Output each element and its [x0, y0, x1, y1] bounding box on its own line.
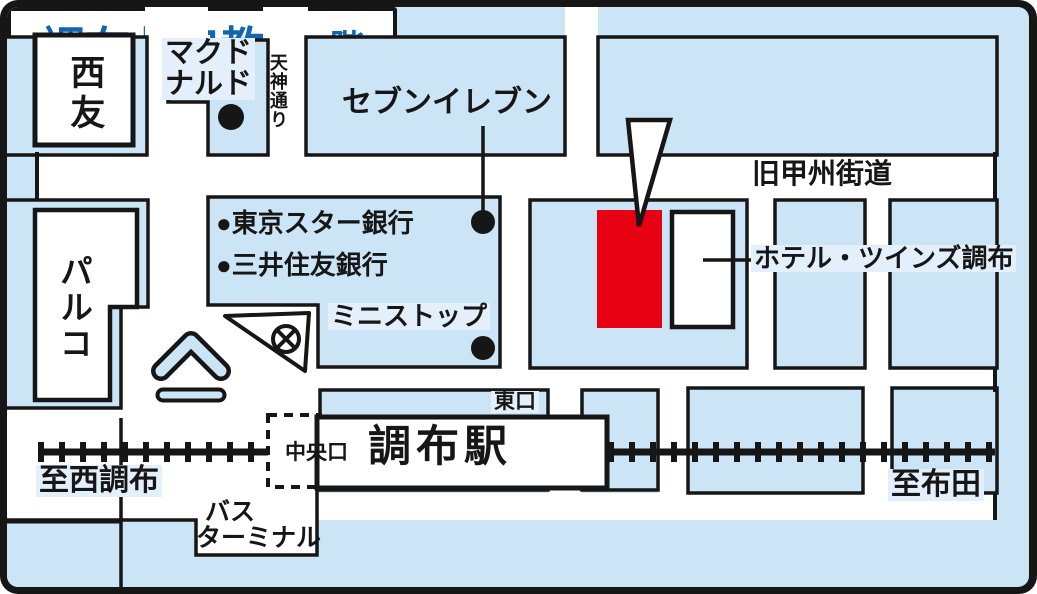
block-f: [890, 200, 997, 368]
seven-eleven-poi-dot: [471, 210, 495, 234]
road-v5: [865, 200, 890, 392]
label-seiyu: 西友: [35, 39, 133, 149]
ministop-poi-dot: [471, 336, 495, 360]
label-parco: パルコ: [38, 225, 108, 390]
map-canvas: 西友 マクド ナルド 天神通り セブンイレブン 調布北口教室1階 旧甲州街道 ●…: [7, 7, 1029, 587]
label-tokyo-star-bank: ●東京スター銀行: [216, 210, 414, 237]
label-hotel-twins-chofu: ホテル・ツインズ調布: [751, 245, 1016, 272]
block-e: [775, 200, 865, 368]
label-central-exit: 中央口: [285, 442, 348, 464]
label-bus-terminal-line2: ターミナル: [196, 525, 321, 551]
access-map: 西友 マクド ナルド 天神通り セブンイレブン 調布北口教室1階 旧甲州街道 ●…: [0, 0, 1037, 594]
label-tenjin-dori: 天神通り: [268, 53, 287, 129]
block-bottom-left: [7, 520, 121, 587]
label-sumitomo-mitsui-bank: ●三井住友銀行: [216, 252, 388, 279]
label-mcdonalds-line1: マクド: [165, 38, 252, 69]
road-top-right-vertical: [565, 7, 598, 200]
map-border: 西友 マクド ナルド 天神通り セブンイレブン 調布北口教室1階 旧甲州街道 ●…: [0, 0, 1037, 594]
road-v4: [747, 200, 775, 392]
label-to-fuda: 至布田: [888, 469, 984, 501]
label-ministop: ミニストップ: [328, 303, 490, 330]
label-kyu-koshu-kaido: 旧甲州街道: [752, 159, 892, 188]
mcdonalds-poi-dot: [218, 104, 244, 130]
block-h: [688, 388, 863, 493]
label-bus-terminal: バス ターミナル: [196, 499, 321, 551]
label-east-exit: 東口: [491, 391, 539, 413]
label-bus-terminal-line1: バス: [196, 499, 321, 525]
hotel-building: [672, 212, 733, 327]
road-v7: [658, 388, 688, 493]
label-seven-eleven: セブンイレブン: [342, 87, 552, 119]
classroom-location-marker: [597, 210, 662, 328]
label-to-nishi-chofu: 至西調布: [36, 465, 162, 497]
label-mcdonalds: マクド ナルド: [162, 38, 255, 100]
label-mcdonalds-line2: ナルド: [165, 69, 252, 100]
label-chofu-station: 調布駅: [368, 425, 512, 470]
